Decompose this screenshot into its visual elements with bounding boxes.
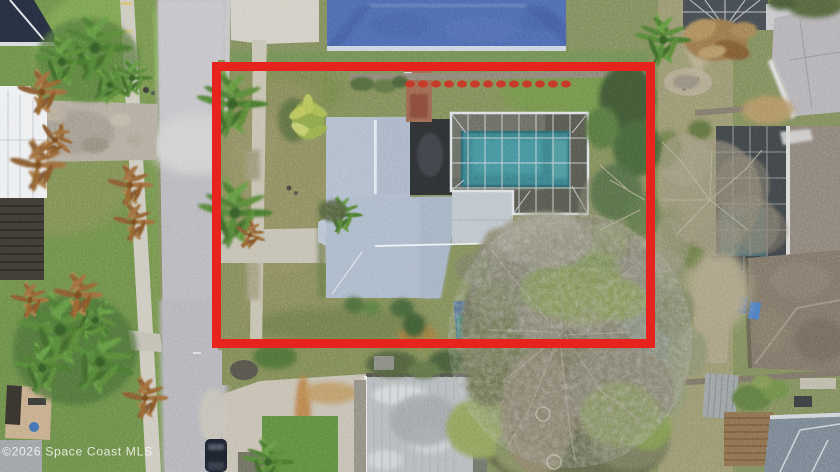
svg-text:©2026 Space Coast MLS: ©2026 Space Coast MLS — [2, 445, 153, 459]
